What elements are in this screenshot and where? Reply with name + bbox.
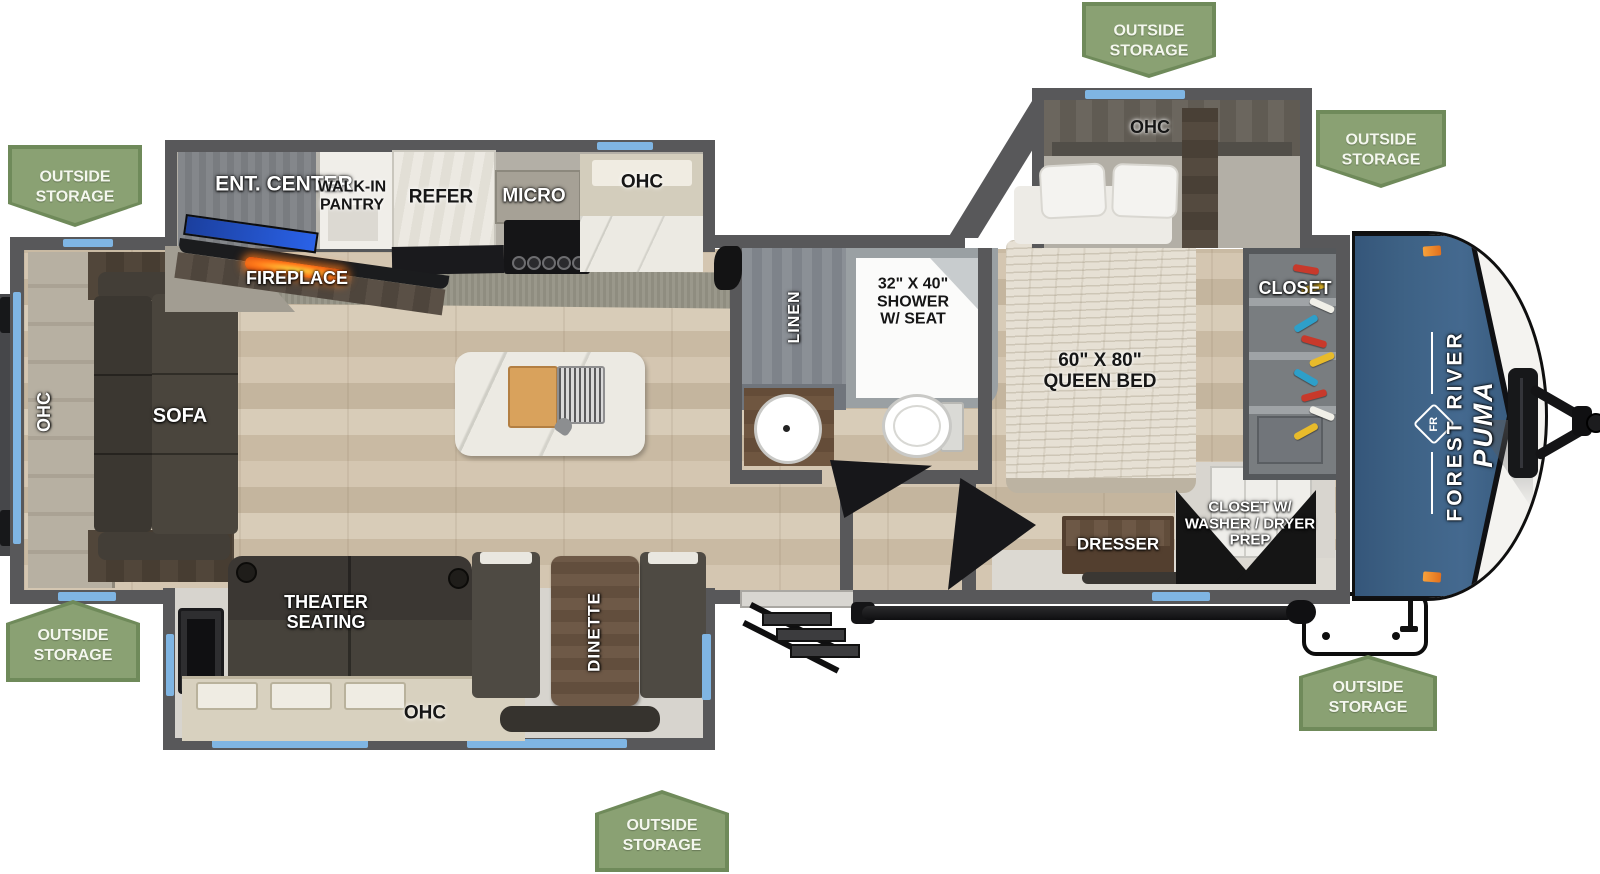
top-wall-mid — [703, 235, 965, 248]
toilet — [882, 394, 952, 458]
label-shower: 32" X 40"SHOWERW/ SEAT — [877, 276, 949, 329]
cutting-board — [508, 366, 558, 428]
marker-light — [1423, 571, 1442, 582]
hitch-ball — [1586, 413, 1600, 433]
sofa-back — [94, 296, 152, 532]
tongue-jack — [1408, 598, 1413, 628]
label-ohc-theater: OHC — [404, 704, 446, 725]
rear-window — [13, 292, 21, 544]
stove — [504, 220, 590, 274]
label-wd-closet: CLOSET W/WASHER / DRYERPREP — [1185, 499, 1315, 549]
stove-burner — [542, 256, 556, 270]
stove-burner — [512, 256, 526, 270]
bench-headrest — [480, 552, 532, 564]
entry-step — [762, 612, 832, 626]
pillow — [1039, 162, 1108, 219]
label-ohc-kitchen: OHC — [621, 173, 663, 194]
bedroom-slide-window — [1085, 90, 1185, 99]
label-fireplace: FIREPLACE — [246, 269, 348, 289]
label-refer: REFER — [409, 188, 473, 209]
outside-storage-badge: OUTSIDESTORAGE — [595, 790, 729, 872]
clothes-item — [1293, 264, 1320, 275]
cap-deco-line — [1431, 332, 1433, 394]
bottom-wall-front — [853, 590, 1348, 604]
clothes-item — [1293, 314, 1319, 333]
stove-burner — [527, 256, 541, 270]
theater-ohc-door — [196, 682, 258, 710]
label-walk-in-pantry: WALK-INPANTRY — [318, 178, 386, 213]
island-sink — [557, 366, 605, 424]
bedroom-ohc-underside — [1052, 142, 1292, 156]
dinette-bench-right — [640, 552, 706, 698]
marker-light — [1423, 245, 1442, 256]
label-ohc-bedroom: OHC — [1130, 118, 1170, 138]
bedroom-ohc-cabinet — [1044, 100, 1300, 156]
theater-ohc-door — [344, 682, 406, 710]
label-ohc-rear: OHC — [35, 392, 55, 432]
clothes-item — [1301, 389, 1328, 402]
floorplan: FOREST RIVER PUMA FR ENT. CENTER WALK-IN… — [0, 0, 1600, 874]
brand-model: PUMA — [1469, 380, 1499, 468]
step-rail-bolt — [1392, 632, 1400, 640]
clothes-item — [1293, 368, 1319, 387]
sofa-armrest-bottom — [98, 532, 230, 560]
outside-storage-badge: OUTSIDESTORAGE — [1082, 2, 1216, 78]
clothes-item — [1301, 335, 1328, 349]
bottom-slide-window-right — [702, 634, 711, 700]
label-dinette: DINETTE — [586, 592, 605, 672]
bath-sink — [754, 394, 822, 464]
brand-make: FOREST RIVER — [1443, 330, 1466, 521]
tongue-jack-foot — [1400, 626, 1418, 632]
bench-headrest — [648, 552, 698, 564]
outside-storage-badge: OUTSIDESTORAGE — [6, 600, 140, 682]
label-micro: MICRO — [502, 187, 565, 208]
stove-burners — [512, 256, 584, 268]
label-theater-seating: THEATERSEATING — [284, 593, 368, 633]
theater-cupholder — [236, 562, 257, 583]
kitchen-end-counter — [580, 216, 703, 272]
theater-cupholder — [448, 568, 469, 589]
front-wall — [1336, 235, 1350, 604]
toilet-seat-line — [893, 405, 941, 447]
bath-wall-right — [978, 248, 992, 484]
entry-step — [776, 628, 846, 642]
brand-logo-text: FR — [1428, 417, 1440, 432]
awning-bar — [862, 606, 1294, 620]
pillow — [1111, 163, 1179, 219]
label-closet: CLOSET — [1258, 279, 1331, 299]
bedroom-wardrobe — [1182, 108, 1218, 248]
dinette-rug — [500, 706, 660, 732]
label-queen-bed: 60" X 80"QUEEN BED — [1044, 351, 1157, 393]
window-bottom-front — [1152, 592, 1210, 601]
label-sofa: SOFA — [153, 405, 207, 427]
window-curtain — [714, 246, 742, 290]
cap-deco-line — [1431, 452, 1433, 514]
theater-ohc-door — [270, 682, 332, 710]
sink-drain — [783, 425, 790, 432]
slide-tv-screen — [187, 619, 215, 683]
outside-storage-badge: OUTSIDESTORAGE — [1316, 110, 1446, 188]
stove-burner — [557, 256, 571, 270]
label-linen: LINEN — [786, 291, 804, 344]
bed-foot-shadow — [1006, 478, 1196, 493]
outside-storage-badge: OUTSIDESTORAGE — [1299, 655, 1437, 731]
label-dresser: DRESSER — [1077, 536, 1159, 555]
bath-wall-bottom-left — [730, 470, 822, 484]
bottom-slide-window-left — [166, 634, 174, 696]
entry-step — [790, 644, 860, 658]
outside-storage-badge: OUTSIDESTORAGE — [8, 145, 142, 227]
dinette-bench-left — [472, 552, 540, 698]
step-rail-bolt — [1322, 632, 1330, 640]
clothes-item — [1293, 422, 1319, 441]
awning-roller — [1286, 600, 1316, 624]
kitchen-slide-window — [597, 142, 653, 150]
window-top-rear — [63, 239, 113, 247]
